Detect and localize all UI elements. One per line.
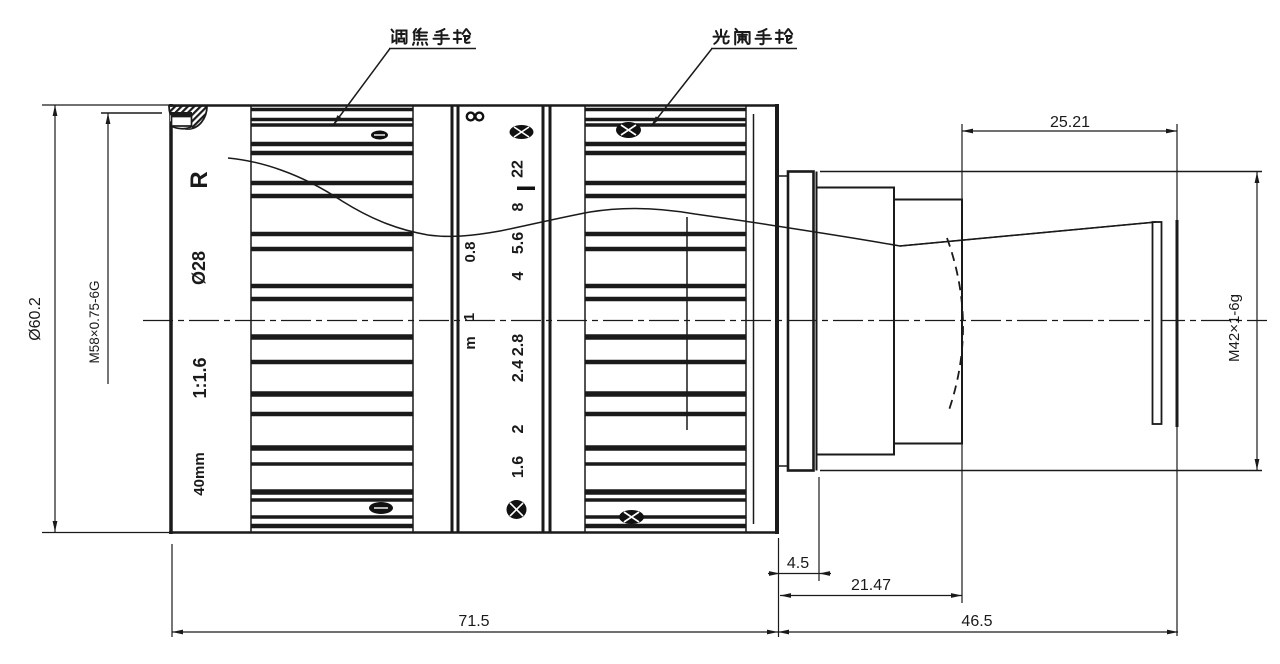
svg-text:R: R [186,171,213,188]
svg-text:4: 4 [510,271,527,280]
svg-text:M58×0.75-6G: M58×0.75-6G [87,281,102,364]
svg-text:Ø28: Ø28 [189,251,209,285]
svg-text:M42×1-6g: M42×1-6g [1226,294,1243,362]
svg-text:25.21: 25.21 [1050,114,1090,131]
svg-text:4.5: 4.5 [787,555,809,572]
svg-text:22: 22 [510,160,527,178]
svg-text:0.8: 0.8 [462,242,479,263]
svg-text:21.47: 21.47 [851,577,891,594]
svg-text:2.8: 2.8 [510,334,527,356]
svg-text:1: 1 [461,313,478,321]
svg-text:8: 8 [510,202,527,211]
svg-text:Ø60.2: Ø60.2 [27,297,44,341]
svg-text:1:1.6: 1:1.6 [190,357,210,398]
svg-text:5.6: 5.6 [510,232,527,254]
svg-text:m: m [462,336,479,349]
svg-text:46.5: 46.5 [961,613,992,630]
svg-text:1.6: 1.6 [510,456,527,478]
svg-text:2.4: 2.4 [510,360,527,382]
svg-text:71.5: 71.5 [458,613,489,630]
svg-text:2: 2 [510,424,527,433]
svg-text:40mm: 40mm [191,452,208,495]
